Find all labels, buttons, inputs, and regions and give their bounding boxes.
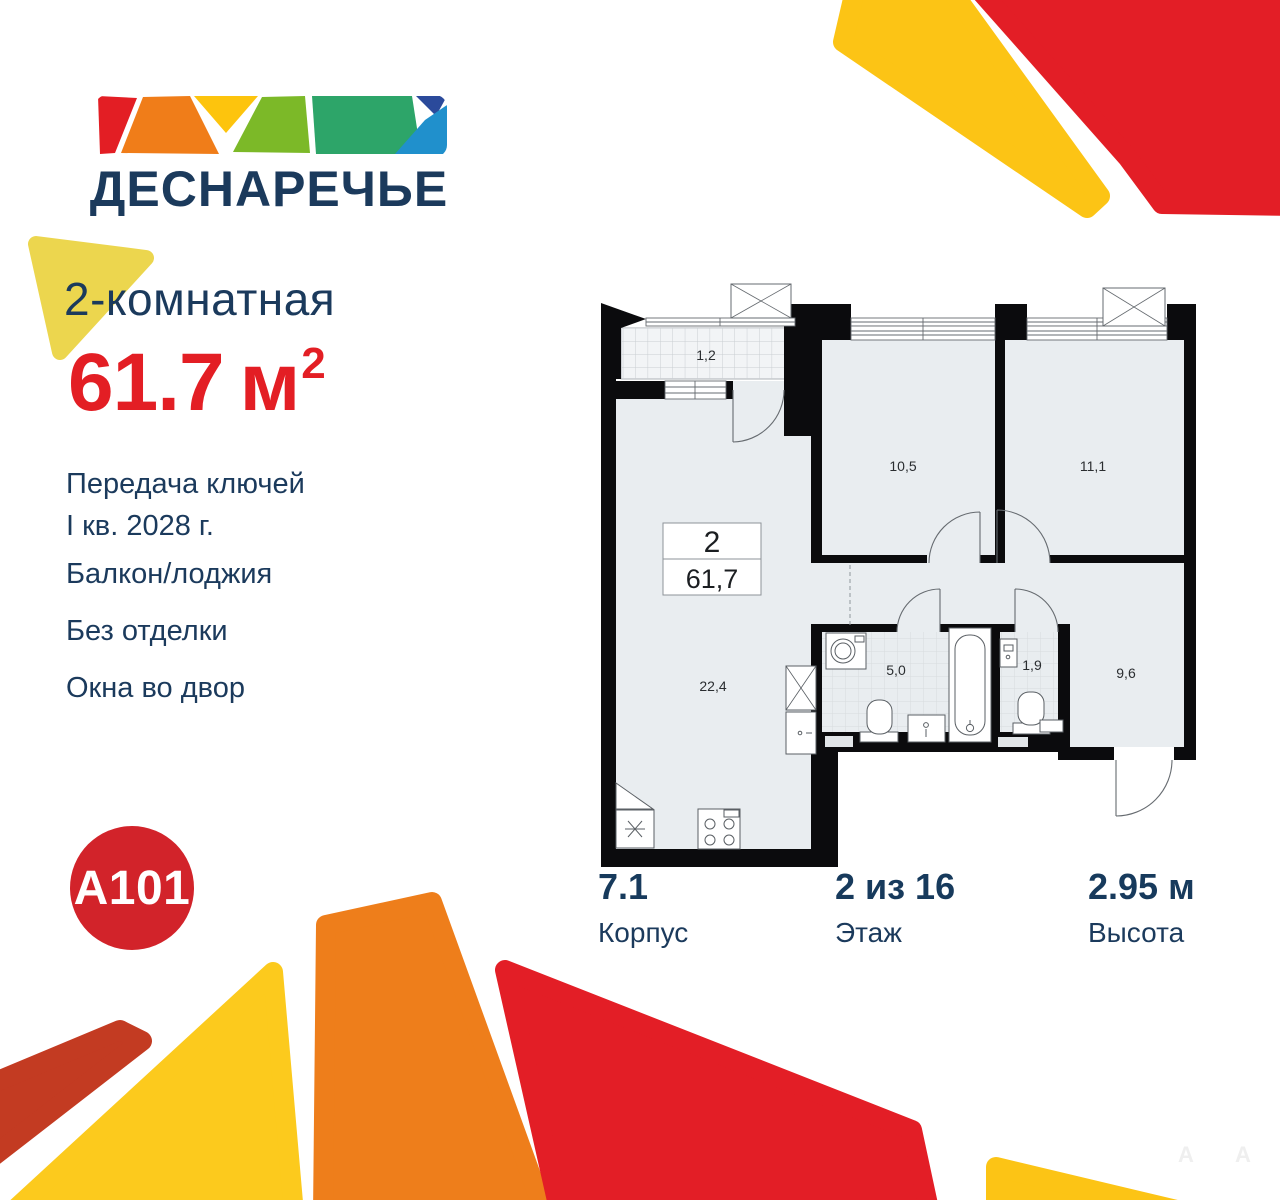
room-label-wc: 1,9 bbox=[1022, 657, 1042, 673]
poster-canvas: ДЕСНАРЕЧЬЕ 2-комнатная 61.7м2 Передача к… bbox=[0, 0, 1280, 1200]
room-label-hallway: 9,6 bbox=[1116, 665, 1136, 681]
feature-keys-handover: Передача ключей bbox=[66, 468, 305, 501]
area-unit: м bbox=[240, 337, 300, 428]
decoration-bottom-orange bbox=[323, 902, 545, 1200]
stat-floor: 2 из 16 Этаж bbox=[835, 866, 955, 949]
room-label-living: 22,4 bbox=[699, 678, 726, 694]
stat-height: 2.95 м Высота bbox=[1088, 866, 1195, 949]
stat-height-label: Высота bbox=[1088, 917, 1195, 949]
feature-no-finishing: Без отделки bbox=[66, 615, 228, 648]
stat-floor-value: 2 из 16 bbox=[835, 866, 955, 908]
area-superscript: 2 bbox=[301, 339, 324, 388]
feature-windows-courtyard: Окна во двор bbox=[66, 672, 245, 705]
watermark-letter: A bbox=[1178, 1142, 1194, 1168]
stat-height-value: 2.95 м bbox=[1088, 866, 1195, 908]
room-label-bathroom: 5,0 bbox=[886, 662, 906, 678]
watermark-letter: A bbox=[1235, 1142, 1251, 1168]
project-logo-mosaic bbox=[92, 92, 458, 162]
logo-title: ДЕСНАРЕЧЬЕ bbox=[88, 160, 450, 218]
floor-plan: 1,2 10,5 11,1 22,4 5,0 1,9 9,6 2 61,7 bbox=[598, 276, 1208, 868]
area-number: 61.7 bbox=[68, 337, 224, 428]
brand-badge-a101: A101 bbox=[70, 826, 194, 950]
apartment-area: 61.7м2 bbox=[68, 336, 325, 430]
room-label-bedroom1: 10,5 bbox=[889, 458, 916, 474]
decoration-bottom-red bbox=[505, 970, 930, 1200]
stat-building-label: Корпус bbox=[598, 917, 688, 949]
decoration-bottom-right-yellow bbox=[996, 1167, 1280, 1200]
logo-tiles bbox=[98, 96, 450, 154]
stat-building-value: 7.1 bbox=[598, 866, 688, 908]
apartment-type: 2-комнатная bbox=[64, 272, 335, 326]
room-label-balcony: 1,2 bbox=[696, 347, 716, 363]
stat-floor-label: Этаж bbox=[835, 917, 955, 949]
unit-rooms-count: 2 bbox=[704, 526, 721, 559]
plan-unit-box: 2 61,7 bbox=[663, 523, 761, 595]
feature-balcony: Балкон/лоджия bbox=[66, 558, 272, 591]
unit-total-area: 61,7 bbox=[686, 564, 739, 594]
room-label-bedroom2: 11,1 bbox=[1080, 458, 1106, 474]
stat-building: 7.1 Корпус bbox=[598, 866, 688, 949]
feature-handover-date: I кв. 2028 г. bbox=[66, 510, 214, 543]
